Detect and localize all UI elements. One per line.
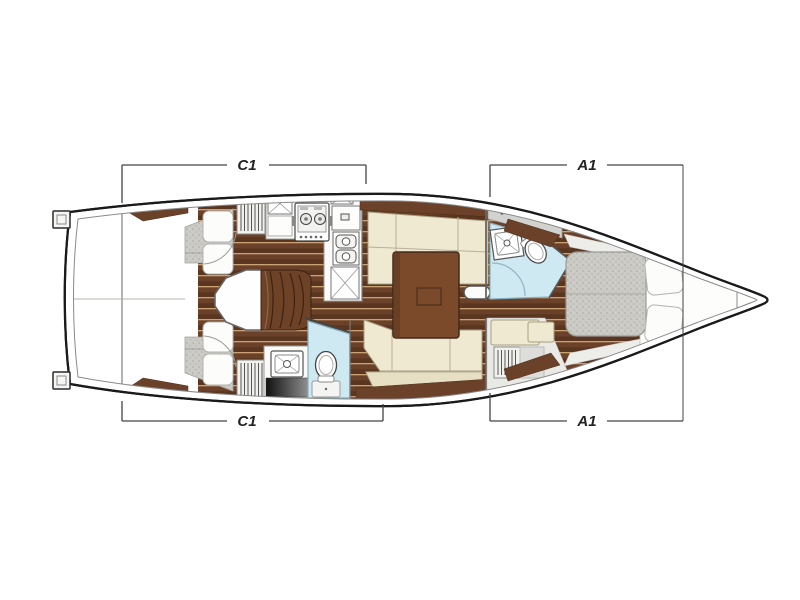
sink-drain [504, 240, 511, 247]
berth-foot-locker [528, 322, 554, 342]
hinge-bracket [53, 372, 70, 389]
counter-panel [268, 216, 292, 236]
pillow [203, 354, 233, 385]
burner-center [304, 217, 308, 221]
pillow [203, 244, 233, 274]
pillow [203, 322, 233, 352]
dimension-label-a1-top: A1 [576, 157, 596, 174]
sink-drain [342, 253, 350, 261]
hinge-bracket [53, 211, 70, 228]
drawer-knob [325, 388, 327, 390]
louvre-slats [241, 363, 262, 397]
companionway [215, 270, 311, 330]
dark-locker [266, 378, 308, 397]
table-edge [393, 252, 400, 338]
dimension-a1-top: A1 [490, 157, 683, 197]
gimbal-mount [292, 216, 295, 226]
toilet-seat-hinge [318, 376, 334, 382]
pillow [203, 211, 233, 242]
dimension-a1-bottom: A1 [490, 393, 683, 430]
saloon-table [393, 252, 459, 338]
interior [58, 190, 757, 412]
dimension-label-a1-bottom: A1 [576, 413, 596, 430]
sink-drain [342, 238, 350, 246]
dimension-label-c1-bottom: C1 [237, 413, 256, 430]
sink-drain [284, 361, 291, 368]
deck-plan-canvas: C1 A1 C1 A1 [0, 0, 800, 600]
pot-clamp [300, 207, 308, 210]
yacht-deck-plan: C1 A1 C1 A1 [0, 0, 800, 600]
pot-clamp [314, 207, 322, 210]
fridge-handle [341, 214, 349, 220]
burner-center [318, 217, 322, 221]
dimension-label-c1-top: C1 [237, 157, 256, 174]
